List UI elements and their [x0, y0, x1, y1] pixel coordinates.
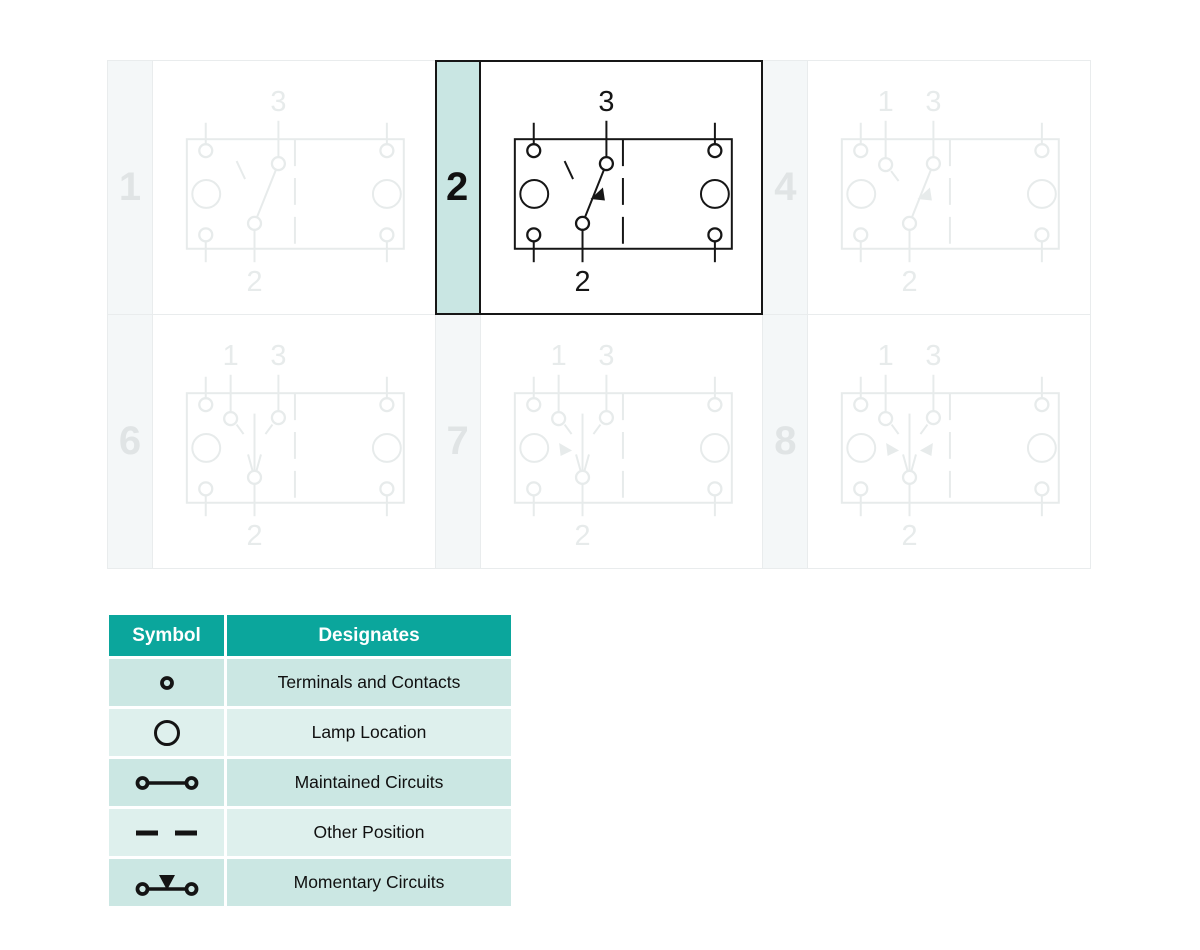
legend-symbol-cell	[109, 709, 224, 756]
lamp-location-right	[1028, 180, 1056, 208]
lamp-location-right	[373, 434, 401, 462]
corner-terminal	[199, 228, 212, 241]
lamp-location-icon	[152, 718, 182, 748]
cell-number-tab: 1	[108, 61, 153, 314]
legend-label: Momentary Circuits	[227, 859, 511, 906]
grid-cell-6[interactable]: 6132	[108, 315, 436, 569]
other-position-tick	[593, 425, 600, 434]
terminal-contact-icon	[157, 673, 177, 693]
corner-terminal	[380, 398, 393, 411]
corner-terminal	[855, 398, 868, 411]
terminal-label-1: 1	[878, 86, 894, 118]
corner-terminal	[855, 144, 868, 157]
terminal-1-contact	[224, 412, 237, 425]
circuit-diagram: 32	[481, 61, 763, 314]
legend-label: Terminals and Contacts	[227, 659, 511, 706]
corner-terminal	[1036, 482, 1049, 495]
terminal-1-contact	[879, 412, 892, 425]
cell-number-tab: 6	[108, 315, 153, 568]
cell-number-tab: 8	[763, 315, 808, 568]
legend-row: Momentary Circuits	[109, 859, 511, 906]
circuit-diagram: 132	[808, 61, 1090, 314]
legend-row: Lamp Location	[109, 709, 511, 756]
cell-number-tab: 4	[763, 61, 808, 314]
lever-prong	[903, 454, 908, 472]
legend-table: Symbol Designates Terminals and Contacts…	[106, 612, 514, 909]
momentary-arrow-icon	[918, 188, 932, 201]
maintained-circuit-icon	[135, 772, 199, 794]
circuit-diagram-svg: 132	[153, 315, 435, 568]
circuit-option-grid: 1322324132613271328132	[107, 60, 1091, 569]
corner-terminal	[855, 482, 868, 495]
grid-cell-2[interactable]: 232	[436, 61, 764, 315]
corner-terminal	[380, 144, 393, 157]
momentary-circuit-icon	[135, 869, 199, 897]
momentary-arrow-icon	[920, 443, 933, 456]
legend-header-designates: Designates	[227, 615, 511, 656]
terminal-label-2: 2	[574, 266, 590, 298]
legend-row: Terminals and Contacts	[109, 659, 511, 706]
legend-label: Maintained Circuits	[227, 759, 511, 806]
circuit-diagram-svg: 32	[153, 61, 435, 314]
lamp-location-left	[192, 180, 220, 208]
corner-terminal	[527, 482, 540, 495]
lever-prong	[911, 454, 916, 472]
terminal-3-contact	[272, 411, 285, 424]
circuit-diagram: 132	[481, 315, 763, 568]
lamp-location-right	[701, 180, 729, 208]
switch-lever	[255, 164, 279, 224]
terminal-3-contact	[272, 157, 285, 170]
terminal-label-3: 3	[270, 86, 286, 118]
terminal-label-2: 2	[246, 520, 262, 552]
cell-number: 1	[119, 165, 141, 210]
terminal-1-contact	[552, 412, 565, 425]
other-position-tick	[892, 425, 899, 434]
terminal-label-3: 3	[270, 340, 286, 372]
terminal-3-contact	[600, 411, 613, 424]
terminal-3-contact	[927, 411, 940, 424]
corner-terminal	[527, 398, 540, 411]
grid-cell-4[interactable]: 4132	[763, 61, 1091, 315]
lamp-location-left	[192, 434, 220, 462]
terminal-2-contact	[903, 471, 916, 484]
circuit-diagram-svg: 132	[808, 315, 1090, 568]
terminal-label-2: 2	[902, 520, 918, 552]
circuit-diagram: 132	[808, 315, 1090, 568]
circuit-diagram-svg: 132	[808, 61, 1090, 314]
legend-symbol-cell	[109, 859, 224, 906]
terminal-2-contact	[248, 471, 261, 484]
other-position-tick	[265, 425, 272, 434]
terminal-label-3: 3	[926, 340, 942, 372]
other-position-icon	[135, 827, 199, 839]
lever-prong	[576, 454, 581, 472]
legend-header-row: Symbol Designates	[109, 615, 511, 656]
terminal-2-contact	[576, 217, 589, 230]
other-position-tick	[237, 425, 244, 434]
terminal-label-3: 3	[598, 86, 614, 118]
other-position-tick	[921, 425, 928, 434]
terminal-label-1: 1	[550, 340, 566, 372]
legend-label: Other Position	[227, 809, 511, 856]
terminal-2-contact	[248, 217, 261, 230]
corner-terminal	[855, 228, 868, 241]
other-position-tick	[237, 161, 245, 179]
corner-terminal	[708, 228, 721, 241]
lamp-location-left	[848, 434, 876, 462]
cell-number: 4	[774, 165, 796, 210]
terminal-label-1: 1	[878, 340, 894, 372]
corner-terminal	[1036, 144, 1049, 157]
terminal-3-contact	[927, 157, 940, 170]
terminal-label-2: 2	[574, 520, 590, 552]
corner-terminal	[199, 482, 212, 495]
corner-terminal	[527, 144, 540, 157]
circuit-diagram: 132	[153, 315, 435, 568]
momentary-arrow-icon	[559, 443, 572, 456]
lamp-location-right	[1028, 434, 1056, 462]
cell-number-tab: 2	[436, 61, 481, 314]
lamp-location-right	[701, 434, 729, 462]
terminal-1-contact	[879, 158, 892, 171]
other-position-tick	[564, 161, 572, 179]
corner-terminal	[527, 228, 540, 241]
corner-terminal	[708, 398, 721, 411]
lamp-location-left	[520, 180, 548, 208]
legend-symbol-cell	[109, 659, 224, 706]
terminal-3-contact	[600, 157, 613, 170]
legend-row: Maintained Circuits	[109, 759, 511, 806]
corner-terminal	[708, 144, 721, 157]
corner-terminal	[708, 482, 721, 495]
lever-prong	[248, 454, 253, 472]
lamp-location-left	[848, 180, 876, 208]
lever-prong	[584, 454, 589, 472]
corner-terminal	[199, 398, 212, 411]
grid-cell-1[interactable]: 132	[108, 61, 436, 315]
legend-symbol-cell	[109, 809, 224, 856]
cell-number: 7	[447, 419, 469, 464]
other-position-tick	[891, 171, 898, 181]
momentary-arrow-icon	[886, 443, 899, 456]
terminal-label-3: 3	[926, 86, 942, 118]
corner-terminal	[1036, 228, 1049, 241]
circuit-diagram: 32	[153, 61, 435, 314]
terminal-2-contact	[903, 217, 916, 230]
terminal-label-1: 1	[223, 340, 239, 372]
grid-cell-8[interactable]: 8132	[763, 315, 1091, 569]
legend-row: Other Position	[109, 809, 511, 856]
cell-number-tab: 7	[436, 315, 481, 568]
corner-terminal	[1036, 398, 1049, 411]
terminal-label-2: 2	[902, 266, 918, 298]
circuit-diagram-svg: 32	[481, 61, 763, 314]
cell-number: 8	[774, 419, 796, 464]
legend-symbol-cell	[109, 759, 224, 806]
lamp-location-left	[520, 434, 548, 462]
other-position-tick	[564, 425, 571, 434]
cell-number: 6	[119, 419, 141, 464]
lever-prong	[256, 454, 261, 472]
legend-header-symbol: Symbol	[109, 615, 224, 656]
terminal-2-contact	[576, 471, 589, 484]
lamp-location-right	[373, 180, 401, 208]
corner-terminal	[199, 144, 212, 157]
grid-cell-7[interactable]: 7132	[436, 315, 764, 569]
cell-number: 2	[446, 165, 468, 210]
circuit-diagram-svg: 132	[481, 315, 763, 568]
corner-terminal	[380, 482, 393, 495]
terminal-label-2: 2	[246, 266, 262, 298]
momentary-arrow-icon	[590, 188, 604, 201]
terminal-label-3: 3	[598, 340, 614, 372]
legend-label: Lamp Location	[227, 709, 511, 756]
corner-terminal	[380, 228, 393, 241]
